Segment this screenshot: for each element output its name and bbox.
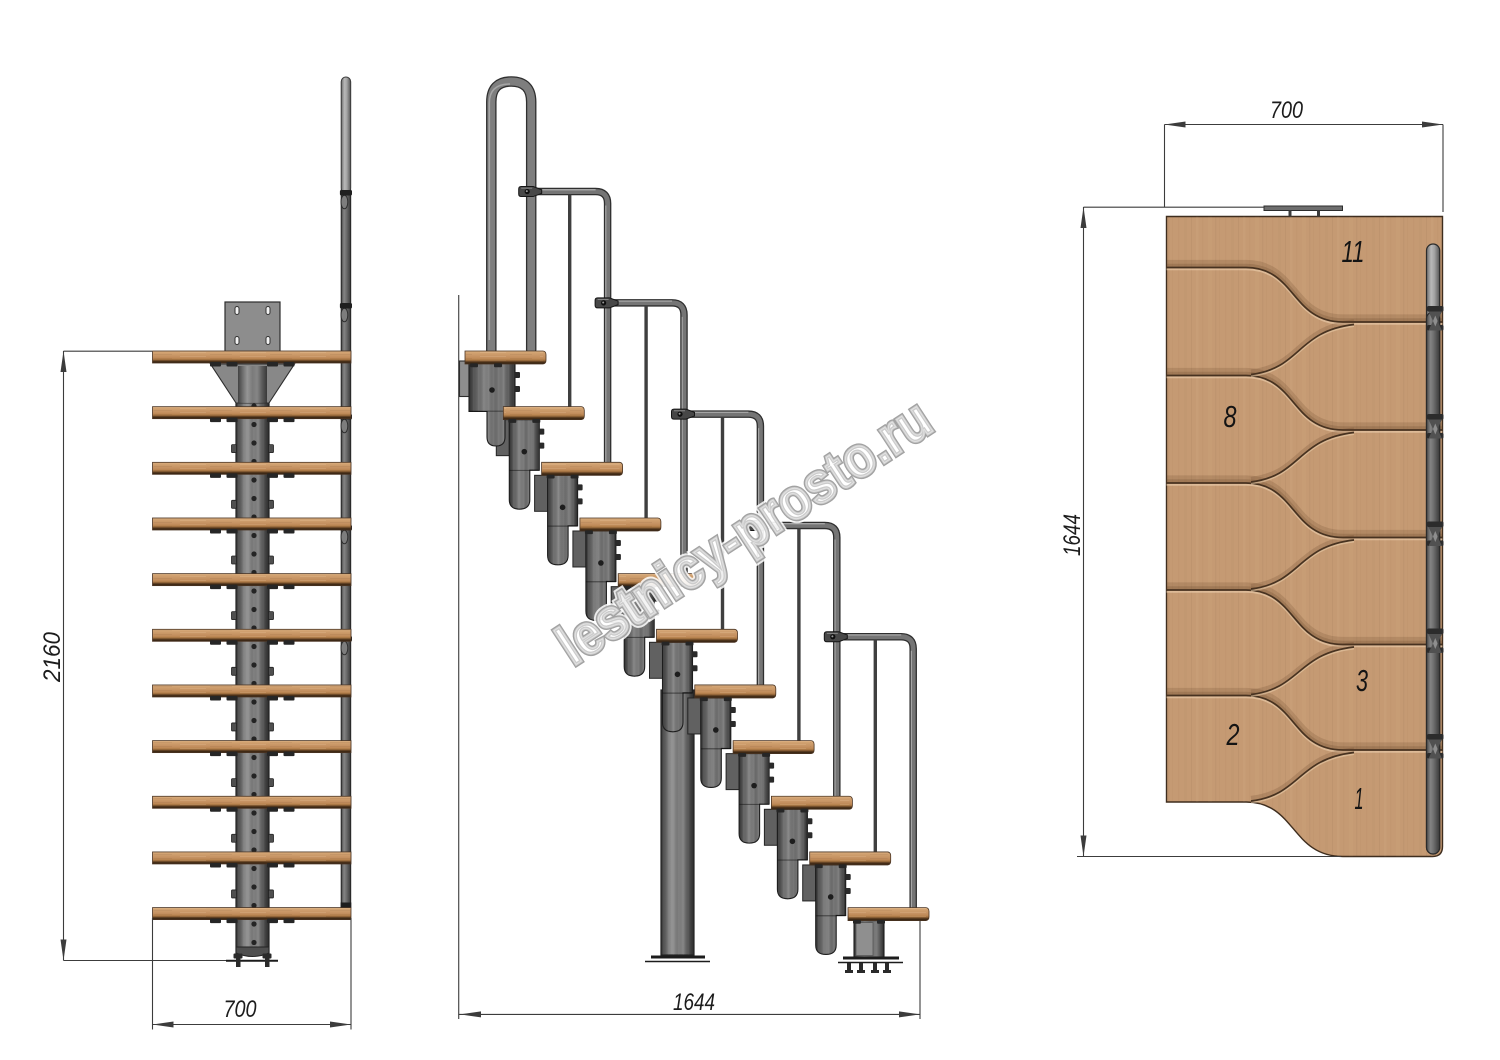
svg-text:1644: 1644 [1059, 514, 1086, 556]
svg-text:2160: 2160 [39, 632, 66, 683]
svg-text:700: 700 [1270, 97, 1303, 124]
svg-text:8: 8 [1224, 399, 1238, 434]
svg-text:3: 3 [1356, 663, 1368, 698]
svg-text:2: 2 [1226, 717, 1240, 752]
svg-text:1644: 1644 [673, 989, 715, 1016]
svg-text:11: 11 [1342, 234, 1365, 269]
svg-text:700: 700 [224, 996, 257, 1023]
svg-text:1: 1 [1355, 781, 1364, 816]
